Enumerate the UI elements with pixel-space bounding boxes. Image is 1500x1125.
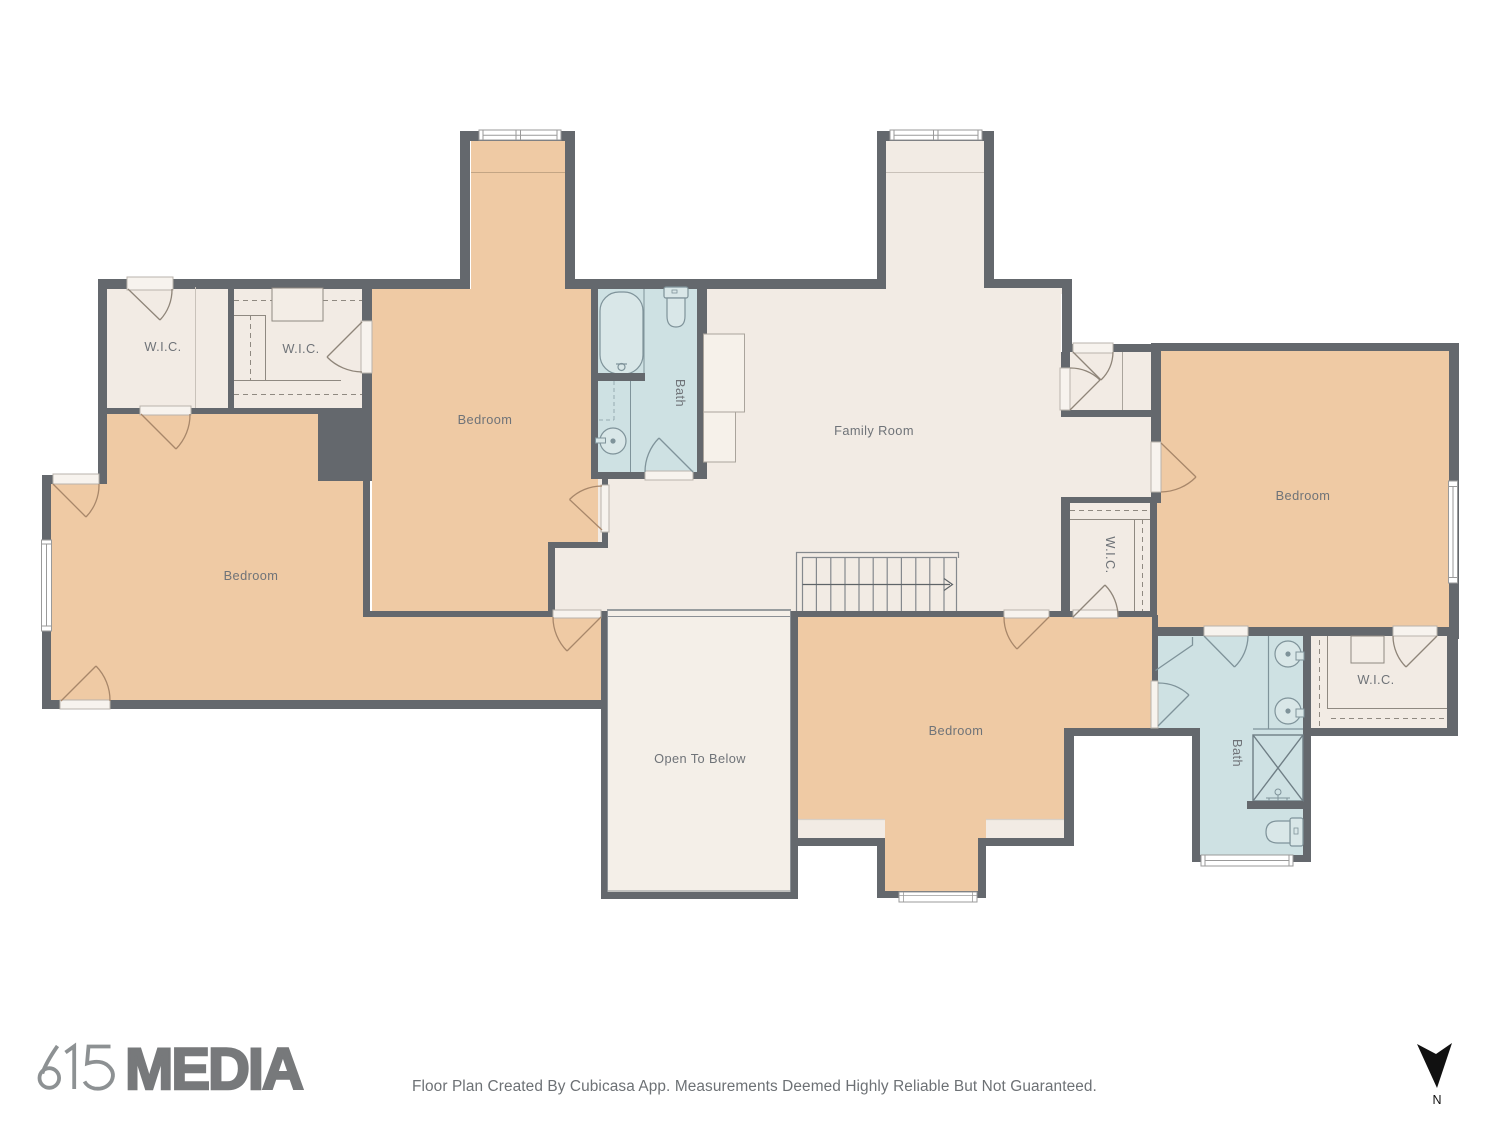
svg-text:Bath: Bath [1230, 739, 1245, 767]
svg-text:Open To Below: Open To Below [654, 751, 746, 766]
svg-text:W.I.C.: W.I.C. [1357, 672, 1394, 687]
svg-text:Bedroom: Bedroom [929, 723, 984, 738]
svg-text:W.I.C.: W.I.C. [282, 341, 319, 356]
svg-text:MEDIA: MEDIA [125, 1037, 303, 1102]
svg-text:W.I.C.: W.I.C. [1103, 536, 1118, 573]
svg-text:Bath: Bath [673, 379, 688, 407]
svg-text:Bedroom: Bedroom [1276, 488, 1331, 503]
svg-text:W.I.C.: W.I.C. [144, 339, 181, 354]
svg-text:Floor Plan Created By Cubicasa: Floor Plan Created By Cubicasa App. Meas… [412, 1078, 1097, 1095]
svg-text:Bedroom: Bedroom [224, 568, 279, 583]
svg-text:Bedroom: Bedroom [458, 412, 513, 427]
svg-text:Family Room: Family Room [834, 423, 914, 438]
svg-text:N: N [1432, 1093, 1441, 1107]
